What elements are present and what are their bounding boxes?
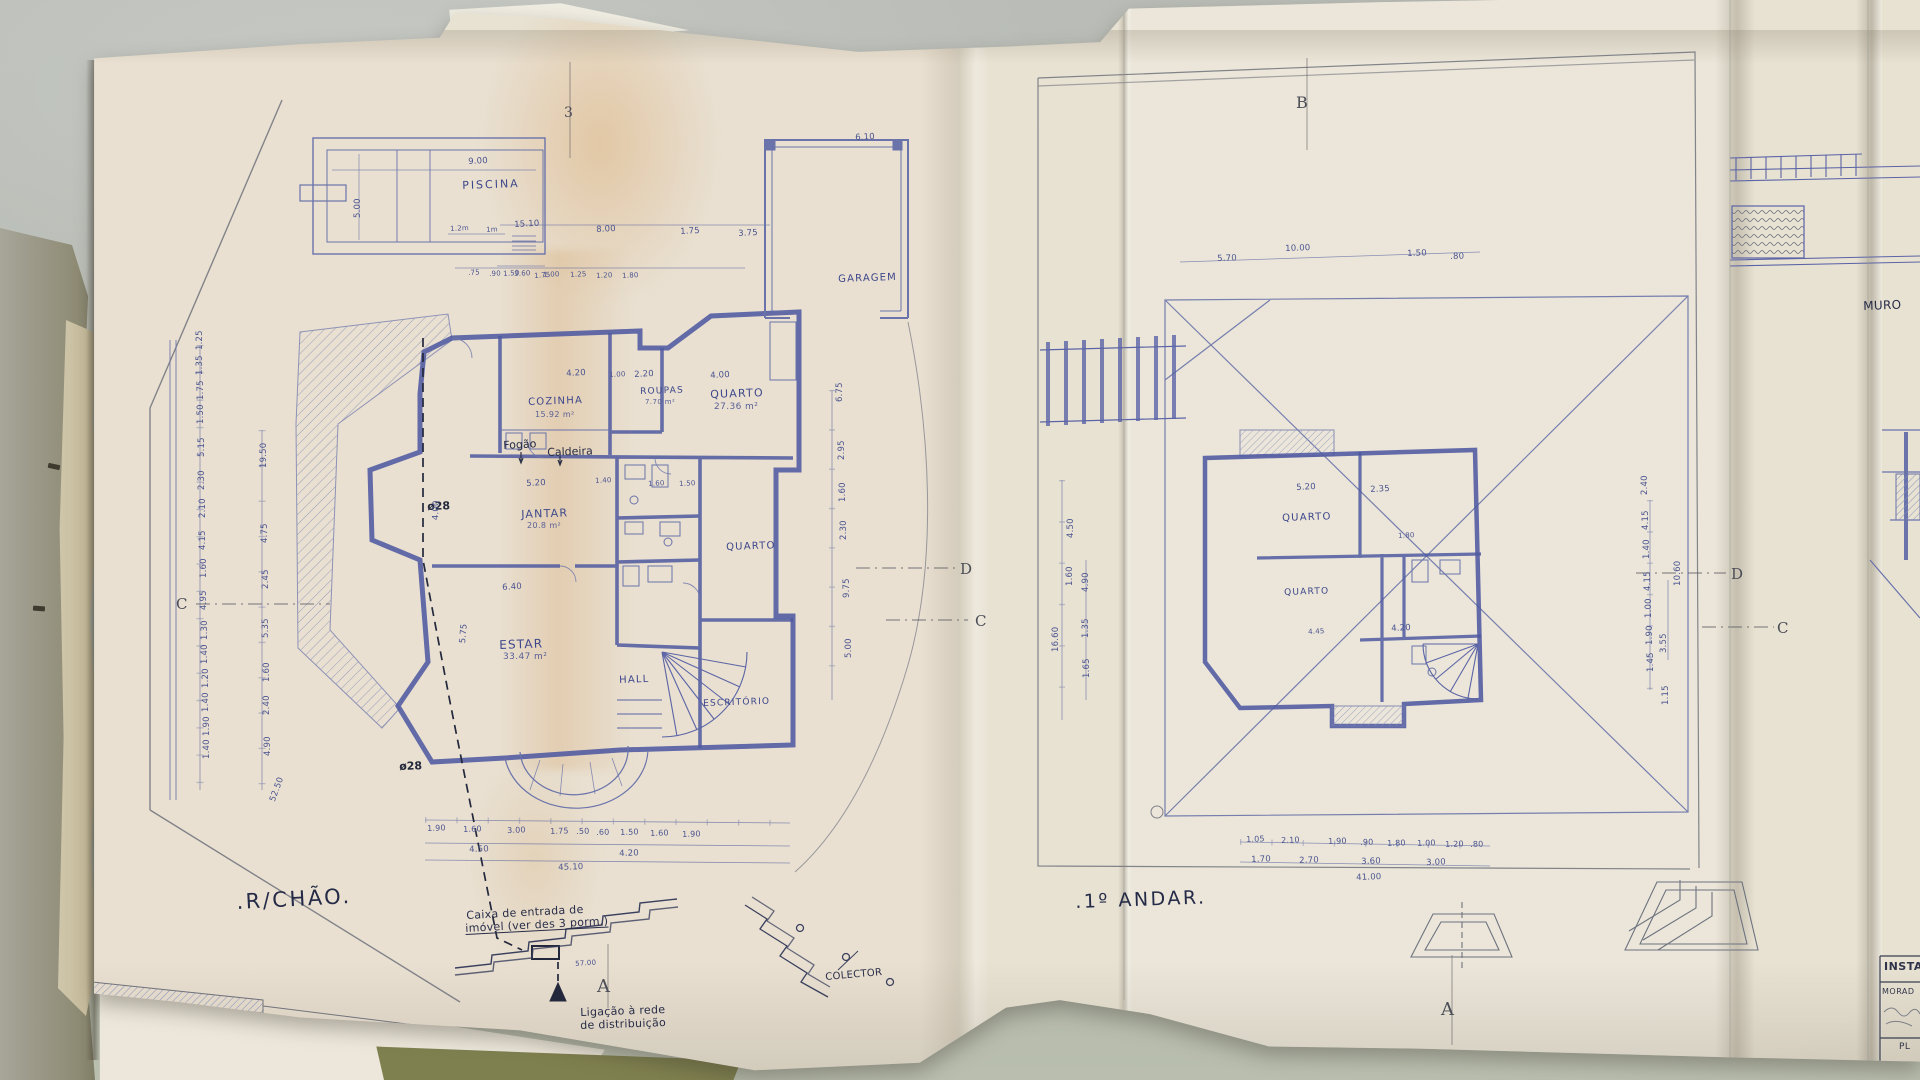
plan-linework [0,0,1920,1080]
house-outer-wall [370,312,799,762]
fence-line [170,340,176,800]
dim-chains-right [1062,252,1668,866]
dims-left-label: 19.20 [146,1012,167,1020]
photo-of-blueprint: .R/CHÃO..1º ANDAR.PISCINAGARAGEMCOZINHAR… [0,0,1920,1080]
pool [300,138,545,266]
far-right-panel [1124,0,1920,1080]
upper-floor-outer-wall [1205,450,1481,726]
blueprint-sheet: .R/CHÃO..1º ANDAR.PISCINAGARAGEMCOZINHAR… [0,0,1920,1080]
stamp-scribble [1884,1008,1920,1026]
fold-lines [1124,0,1868,1070]
right-plan [1038,52,1774,1045]
garage [765,140,908,318]
colector-channel [745,897,894,997]
stepped-wall [455,899,678,975]
site-circle [1151,806,1163,818]
equipment-leaders [519,452,562,465]
fence-elevation [1730,154,1920,266]
garden-planters [1411,880,1758,968]
pergola [1040,335,1186,426]
balcony-hatch-top [1240,430,1334,456]
site-boundary-right [1038,52,1699,869]
stairs-ground-floor [617,652,747,737]
retaining-wall [92,982,455,1030]
dim-chains-left [200,225,832,863]
bath-kitchen-fixtures [500,322,796,586]
terrace-hatch [296,314,452,728]
stone-wall-hatch [1732,206,1804,258]
pool-ladder [512,236,536,250]
utility-dashed-line [423,338,566,1001]
paper-surface: .R/CHÃO..1º ANDAR.PISCINAGARAGEMCOZINHAR… [0,0,1920,1080]
stairs-upper-floor [1423,644,1478,699]
driveway-curve [795,322,928,872]
partition-walls [432,333,793,748]
partial-plan-right-edge [1870,430,1920,618]
arrow-up [550,983,566,1001]
left-plan [92,62,968,1030]
section-lines-right [1307,58,1774,1045]
balcony-hatch-bottom [1332,706,1404,726]
upper-fixtures [1412,560,1460,676]
title-block [1880,956,1920,1080]
